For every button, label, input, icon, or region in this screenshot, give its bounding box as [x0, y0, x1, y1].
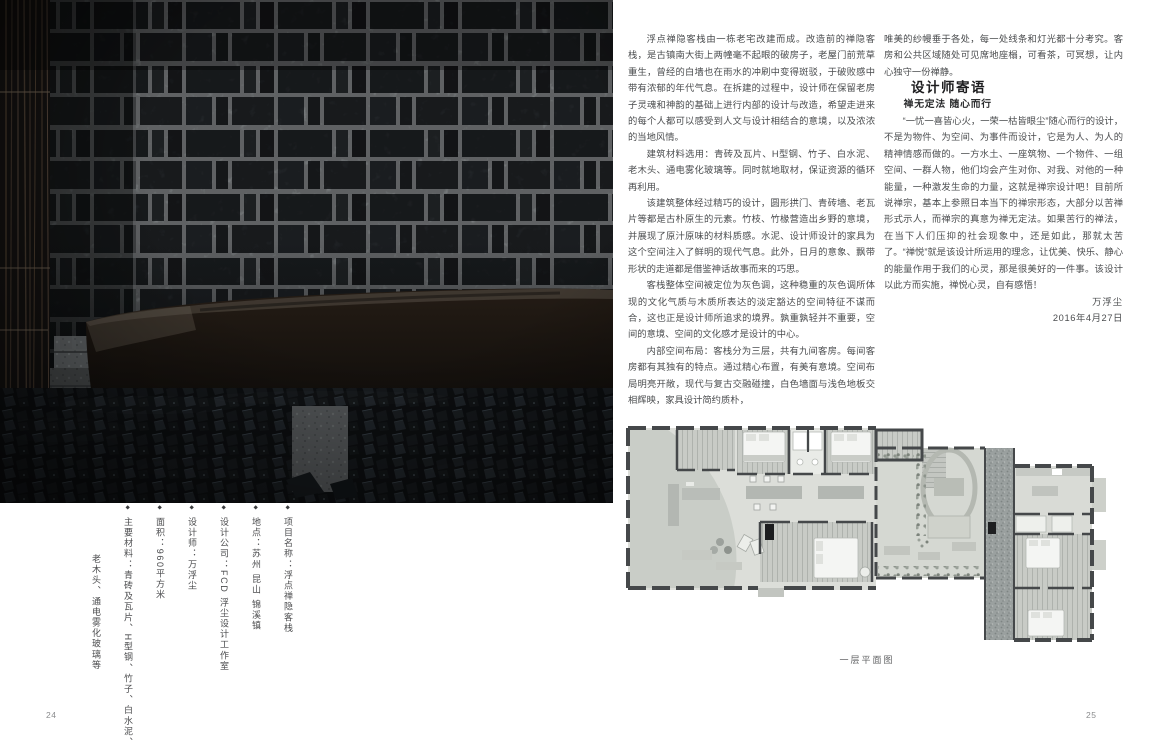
designer-note-subheading: 禅无定法 随心而行	[884, 97, 1123, 113]
project-info-block: 项目名称：浮点禅隐客栈 地点：苏州 昆山 锦溪镇 设计公司：FCD 浮尘设计工作…	[68, 504, 294, 746]
project-info-text: 设计师：万浮尘	[187, 517, 197, 591]
project-info-area: 面积：960平方米	[154, 504, 166, 746]
bed-symbol	[1028, 610, 1064, 636]
designer-signature: 万浮尘	[884, 294, 1123, 310]
article-paragraph: 客栈整体空间被定位为灰色调，这种稳重的灰色调所体现的文化气质与木质所表达的淡定豁…	[628, 277, 875, 343]
hero-photo	[0, 0, 613, 503]
diamond-bullet-icon	[285, 505, 290, 510]
diamond-bullet-icon	[221, 505, 226, 510]
designer-date: 2016年4月27日	[884, 310, 1123, 326]
diamond-bullet-icon	[253, 505, 258, 510]
article-column-1: 浮点禅隐客栈由一栋老宅改建而成。改造前的禅隐客栈，是古镇南大街上两幢毫不起眼的破…	[628, 31, 875, 408]
project-info-company: 设计公司：FCD 浮尘设计工作室	[218, 504, 230, 746]
project-info-text: 老木头、通电雾化玻璃等	[91, 554, 101, 671]
project-info-text: 设计公司：FCD 浮尘设计工作室	[219, 517, 229, 672]
article-paragraph: 浮点禅隐客栈由一栋老宅改建而成。改造前的禅隐客栈，是古镇南大街上两幢毫不起眼的破…	[628, 31, 875, 146]
project-info-text: 面积：960平方米	[155, 517, 165, 600]
page-number-right: 25	[1086, 710, 1096, 720]
article-continuation: 唯美的纱幔垂于各处，每一处线条和灯光都十分考究。客房和公共区域随处可见席地座榻，…	[884, 31, 1123, 80]
designer-note-body: “一忧一喜皆心火，一荣一枯皆眼尘”随心而行的设计，不是为物件、为空间、为事件而设…	[884, 113, 1123, 293]
diamond-bullet-icon	[157, 505, 162, 510]
project-info-materials-continued: 老木头、通电雾化玻璃等	[90, 504, 102, 750]
project-info-materials: 主要材料：青砖及瓦片、H型钢、竹子、白水泥、	[122, 504, 134, 746]
designer-note-heading: 设计师寄语	[884, 80, 1123, 96]
diamond-bullet-icon	[125, 505, 130, 510]
project-info-text: 地点：苏州 昆山 锦溪镇	[251, 517, 261, 631]
article-paragraph: 内部空间布局：客栈分为三层，共有九间客房。每间客房都有其独有的特点。通过精心布置…	[628, 343, 875, 409]
project-info-location: 地点：苏州 昆山 锦溪镇	[250, 504, 262, 746]
project-info-designer: 设计师：万浮尘	[186, 504, 198, 746]
diamond-bullet-icon	[189, 505, 194, 510]
project-info-name: 项目名称：浮点禅隐客栈	[282, 504, 294, 746]
project-info-text: 项目名称：浮点禅隐客栈	[283, 517, 293, 634]
bed-symbol	[831, 432, 871, 462]
magazine-spread: 项目名称：浮点禅隐客栈 地点：苏州 昆山 锦溪镇 设计公司：FCD 浮尘设计工作…	[0, 0, 1149, 750]
floor-plan: 一层平面图	[622, 422, 1112, 666]
project-info-text: 主要材料：青砖及瓦片、H型钢、竹子、白水泥、	[123, 517, 133, 748]
article-column-2: 唯美的纱幔垂于各处，每一处线条和灯光都十分考究。客房和公共区域随处可见席地座榻，…	[884, 31, 1123, 326]
floor-plan-drawing	[622, 422, 1112, 644]
hero-photo-art	[0, 0, 613, 503]
page-number-left: 24	[46, 710, 56, 720]
article-paragraph: 建筑材料选用：青砖及瓦片、H型钢、竹子、白水泥、老木头、通电雾化玻璃等。同时就地…	[628, 146, 875, 195]
floor-plan-caption: 一层平面图	[622, 653, 1112, 666]
article-paragraph: 该建筑整体经过精巧的设计，圆形拱门、青砖墙、老瓦片等都是古朴原生的元素。竹枝、竹…	[628, 195, 875, 277]
bed-symbol	[1026, 538, 1060, 568]
bed-symbol	[743, 432, 785, 462]
